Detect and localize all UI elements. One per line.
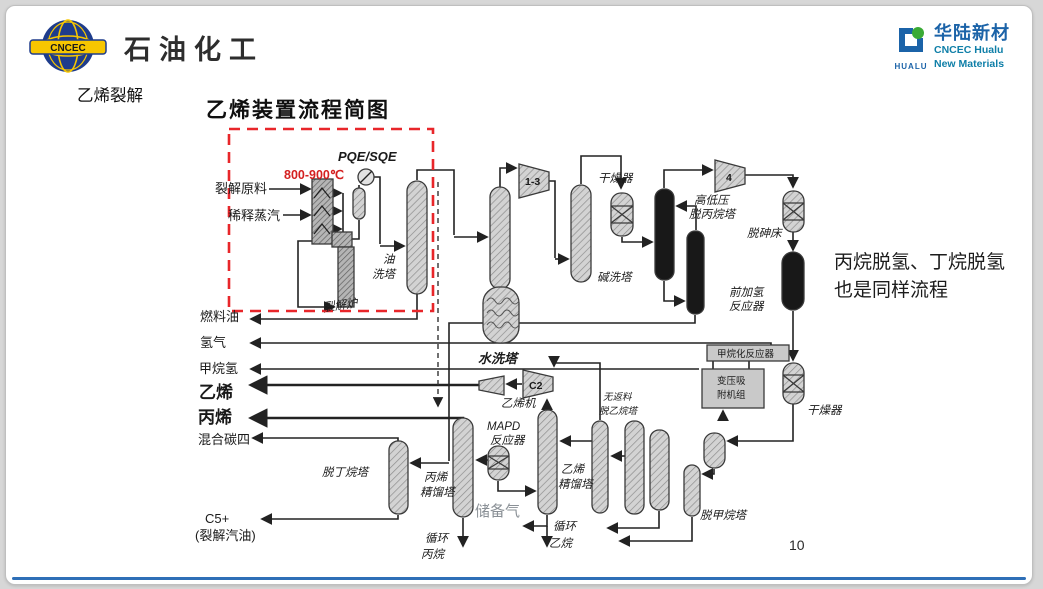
dryer-vessel-2 — [783, 363, 804, 404]
label-fronthydro-1: 前加氢 — [729, 286, 765, 299]
label-methanation: 甲烷化反应器 — [717, 348, 775, 360]
label-deprop-2: 脱丙烷塔 — [689, 208, 737, 221]
label-methane-h2: 甲烷氢 — [199, 361, 238, 376]
label-debutanizer: 脱丁烷塔 — [322, 466, 370, 479]
front-hydrogenation-reactor — [782, 252, 804, 310]
arsenic-removal-bed — [783, 191, 804, 232]
label-feed2: 稀释蒸汽 — [228, 208, 280, 223]
propylene-fractionator — [453, 418, 473, 517]
label-dryer2: 干燥器 — [807, 404, 843, 417]
debutanizer-tower — [389, 441, 408, 514]
label-psa-1: 变压吸 — [717, 375, 746, 387]
demethanizer-tower-2 — [684, 465, 700, 516]
label-hydrogen: 氢气 — [200, 335, 226, 350]
label-temperature: 800-900℃ — [284, 168, 344, 182]
process-flow-diagram: PQE/SQE 800-900℃ 裂解原料 稀释蒸汽 裂解炉 油 洗塔 水洗塔 … — [6, 6, 1032, 584]
label-oil-wash-2: 洗塔 — [372, 268, 397, 281]
label-deeth-1: 无返料 — [603, 392, 632, 403]
label-ethylene-comp: 乙烯机 — [501, 397, 536, 410]
label-ethylene: 乙烯 — [199, 382, 233, 402]
label-recycle-propane-1: 循环 — [425, 532, 450, 545]
label-comp13: 1-3 — [525, 176, 540, 188]
label-e2frac-1: 乙烯 — [561, 463, 585, 476]
label-recycle-ethane-1: 循环 — [553, 520, 578, 533]
label-deprop-1: 高低压 — [694, 194, 731, 207]
label-mapd-1: MAPD — [487, 421, 520, 433]
demethanizer-tower-1 — [650, 430, 669, 510]
label-pygas: (裂解汽油) — [195, 528, 256, 543]
label-c3frac-2: 精馏塔 — [420, 486, 457, 499]
diagram-labels: PQE/SQE 800-900℃ 裂解原料 稀释蒸汽 裂解炉 油 洗塔 水洗塔 … — [195, 149, 843, 561]
oil-wash-tower — [407, 181, 427, 294]
quench-drum — [353, 188, 365, 219]
label-water-wash: 水洗塔 — [478, 351, 520, 366]
label-recycle-propane-2: 丙烷 — [421, 548, 445, 561]
label-c5: C5+ — [205, 511, 229, 526]
label-oil-wash-1: 油 — [383, 253, 396, 266]
expander — [479, 376, 504, 395]
label-arsenic: 脱砷床 — [747, 227, 783, 240]
label-comp4: 4 — [726, 172, 732, 184]
label-demethanizer: 脱甲烷塔 — [700, 509, 748, 522]
label-dryer1: 干燥器 — [598, 172, 634, 185]
depropanizer-hp — [655, 189, 674, 280]
label-fuel-oil: 燃料油 — [200, 309, 239, 324]
reflux-drum — [704, 433, 725, 468]
label-mapd-2: 反应器 — [490, 434, 526, 447]
water-wash-tower — [483, 187, 519, 343]
mapd-reactor — [488, 446, 509, 480]
quench-exchanger-icon — [358, 169, 374, 185]
label-e2frac-2: 精馏塔 — [558, 478, 595, 491]
deethanizer-tower — [625, 421, 644, 514]
cracking-furnace — [312, 179, 354, 307]
label-recycle-ethane-2: 乙烷 — [549, 537, 573, 550]
label-fronthydro-2: 反应器 — [729, 300, 765, 313]
label-psa-2: 附机组 — [717, 389, 746, 401]
label-caustic: 碱洗塔 — [597, 271, 634, 284]
slide: CNCEC 石油化工 HUALU 华陆新材 CNCEC Hualu New Ma… — [5, 5, 1033, 585]
caustic-wash-tower — [571, 185, 591, 282]
label-mixed-c4: 混合碳四 — [198, 432, 250, 447]
stripper-tower — [592, 421, 608, 513]
label-feed1: 裂解原料 — [215, 181, 267, 196]
psa-unit-box — [702, 369, 764, 408]
label-c3frac-1: 丙烯 — [424, 471, 448, 484]
ethylene-fractionator — [538, 410, 557, 514]
label-pqe: PQE/SQE — [338, 149, 397, 164]
label-reserve-gas: 储备气 — [475, 503, 520, 520]
label-c2: C2 — [529, 380, 543, 392]
label-furnace: 裂解炉 — [322, 297, 359, 315]
label-deeth-2: 脱乙烷塔 — [599, 405, 639, 417]
label-propylene: 丙烯 — [198, 407, 232, 427]
dryer-vessel-1 — [611, 193, 633, 236]
depropanizer-lp — [687, 231, 704, 314]
